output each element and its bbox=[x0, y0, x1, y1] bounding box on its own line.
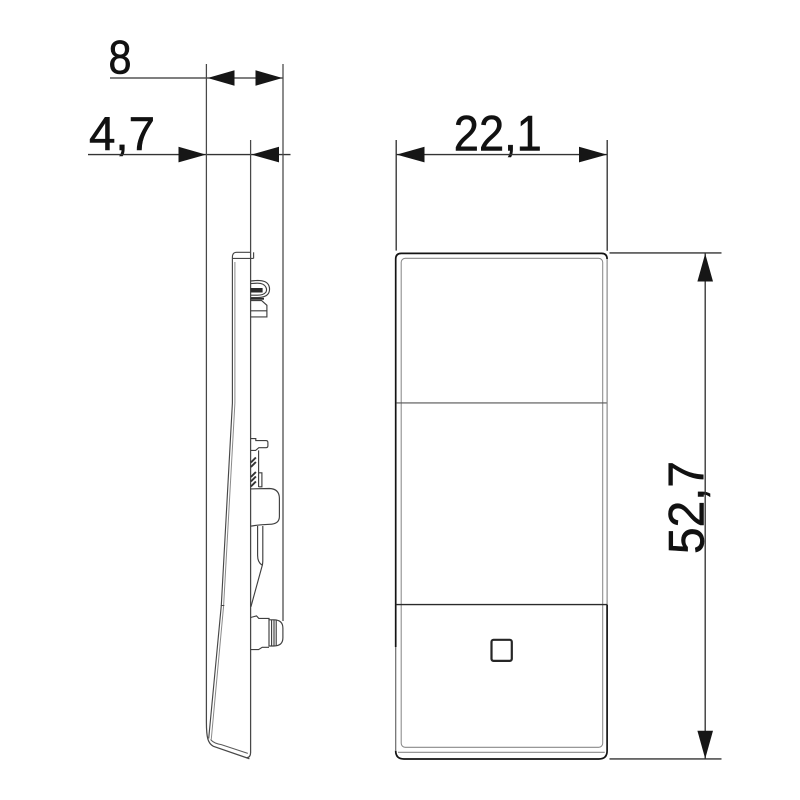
svg-text:8: 8 bbox=[109, 31, 132, 84]
svg-text:52,7: 52,7 bbox=[659, 461, 715, 554]
svg-text:4,7: 4,7 bbox=[89, 107, 155, 160]
svg-text:22,1: 22,1 bbox=[454, 106, 542, 162]
